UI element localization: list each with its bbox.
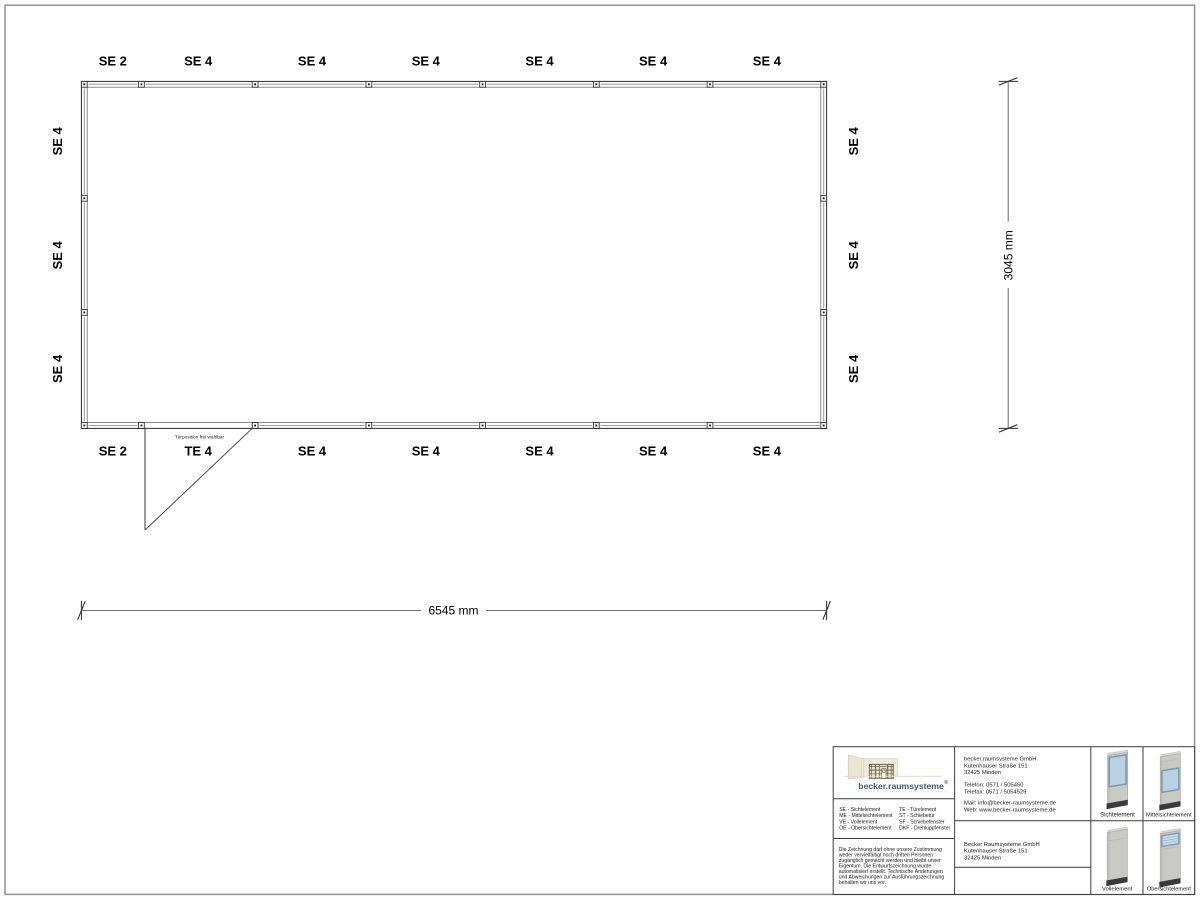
svg-text:becker.raumsysteme GmbH: becker.raumsysteme GmbH [964, 756, 1036, 762]
svg-text:Sichtelement: Sichtelement [1100, 813, 1135, 819]
svg-text:SE 4: SE 4 [184, 54, 213, 69]
svg-text:3045 mm: 3045 mm [1002, 230, 1016, 280]
svg-text:Türposition frei wählbar: Türposition frei wählbar [175, 434, 225, 440]
svg-text:TE - Türelement: TE - Türelement [899, 807, 937, 813]
svg-text:SE 4: SE 4 [639, 54, 668, 69]
svg-text:Vollelement: Vollelement [1102, 887, 1133, 893]
svg-text:6545 mm: 6545 mm [428, 604, 478, 618]
svg-text:ST - Schiebetür: ST - Schiebetür [899, 813, 935, 819]
svg-text:SE 2: SE 2 [99, 54, 127, 69]
svg-text:Telefax: 0571 / 5054529: Telefax: 0571 / 5054529 [964, 789, 1026, 795]
svg-text:Web: www.becker-raumsysteme.de: Web: www.becker-raumsysteme.de [964, 808, 1056, 814]
svg-text:SE 2: SE 2 [99, 444, 127, 459]
svg-text:Obersichtelement: Obersichtelement [1147, 887, 1191, 893]
svg-text:Kutenhauser Straße 151: Kutenhauser Straße 151 [964, 763, 1028, 769]
svg-text:SE - Sichtelement: SE - Sichtelement [839, 807, 881, 813]
svg-text:®: ® [944, 779, 948, 786]
svg-text:SE 4: SE 4 [753, 444, 782, 459]
svg-text:SE 4: SE 4 [412, 444, 441, 459]
svg-text:32425 Minden: 32425 Minden [964, 855, 1001, 861]
svg-text:OE - Obersichtelement: OE - Obersichtelement [839, 826, 892, 832]
svg-text:Mail: info@becker-raumsysteme.: Mail: info@becker-raumsysteme.de [964, 801, 1056, 807]
svg-text:32425 Minden: 32425 Minden [964, 770, 1001, 776]
svg-text:SF - Schiebefenster: SF - Schiebefenster [899, 819, 945, 825]
svg-text:Becker Raumsysteme GmbH: Becker Raumsysteme GmbH [964, 842, 1040, 848]
svg-text:SE 4: SE 4 [846, 240, 861, 269]
svg-text:SE 4: SE 4 [50, 240, 65, 269]
svg-text:becker.raumsysteme: becker.raumsysteme [858, 781, 944, 791]
svg-text:Mittelsichtelement: Mittelsichtelement [1146, 813, 1192, 819]
svg-text:Telefon: 0571 / 505450: Telefon: 0571 / 505450 [964, 782, 1024, 788]
svg-text:SE 4: SE 4 [846, 126, 861, 155]
svg-text:SE 4: SE 4 [525, 444, 554, 459]
svg-text:SE 4: SE 4 [846, 354, 861, 383]
svg-text:SE 4: SE 4 [50, 354, 65, 383]
svg-text:SE 4: SE 4 [50, 126, 65, 155]
svg-text:TE 4: TE 4 [184, 444, 212, 459]
svg-text:SE 4: SE 4 [298, 54, 327, 69]
svg-text:Kutenhauser Straße 151: Kutenhauser Straße 151 [964, 849, 1028, 855]
svg-text:ME - Mittelsichtelement: ME - Mittelsichtelement [839, 813, 893, 819]
svg-text:SE 4: SE 4 [639, 444, 668, 459]
svg-text:behalten wir uns vor.: behalten wir uns vor. [839, 880, 886, 886]
svg-text:SE 4: SE 4 [753, 54, 782, 69]
svg-text:SE 4: SE 4 [525, 54, 554, 69]
svg-text:VE - Vollelement: VE - Vollelement [839, 819, 878, 825]
svg-text:SE 4: SE 4 [412, 54, 441, 69]
svg-text:DKF - Drehkippfenster: DKF - Drehkippfenster [899, 826, 950, 832]
svg-text:SE 4: SE 4 [298, 444, 327, 459]
